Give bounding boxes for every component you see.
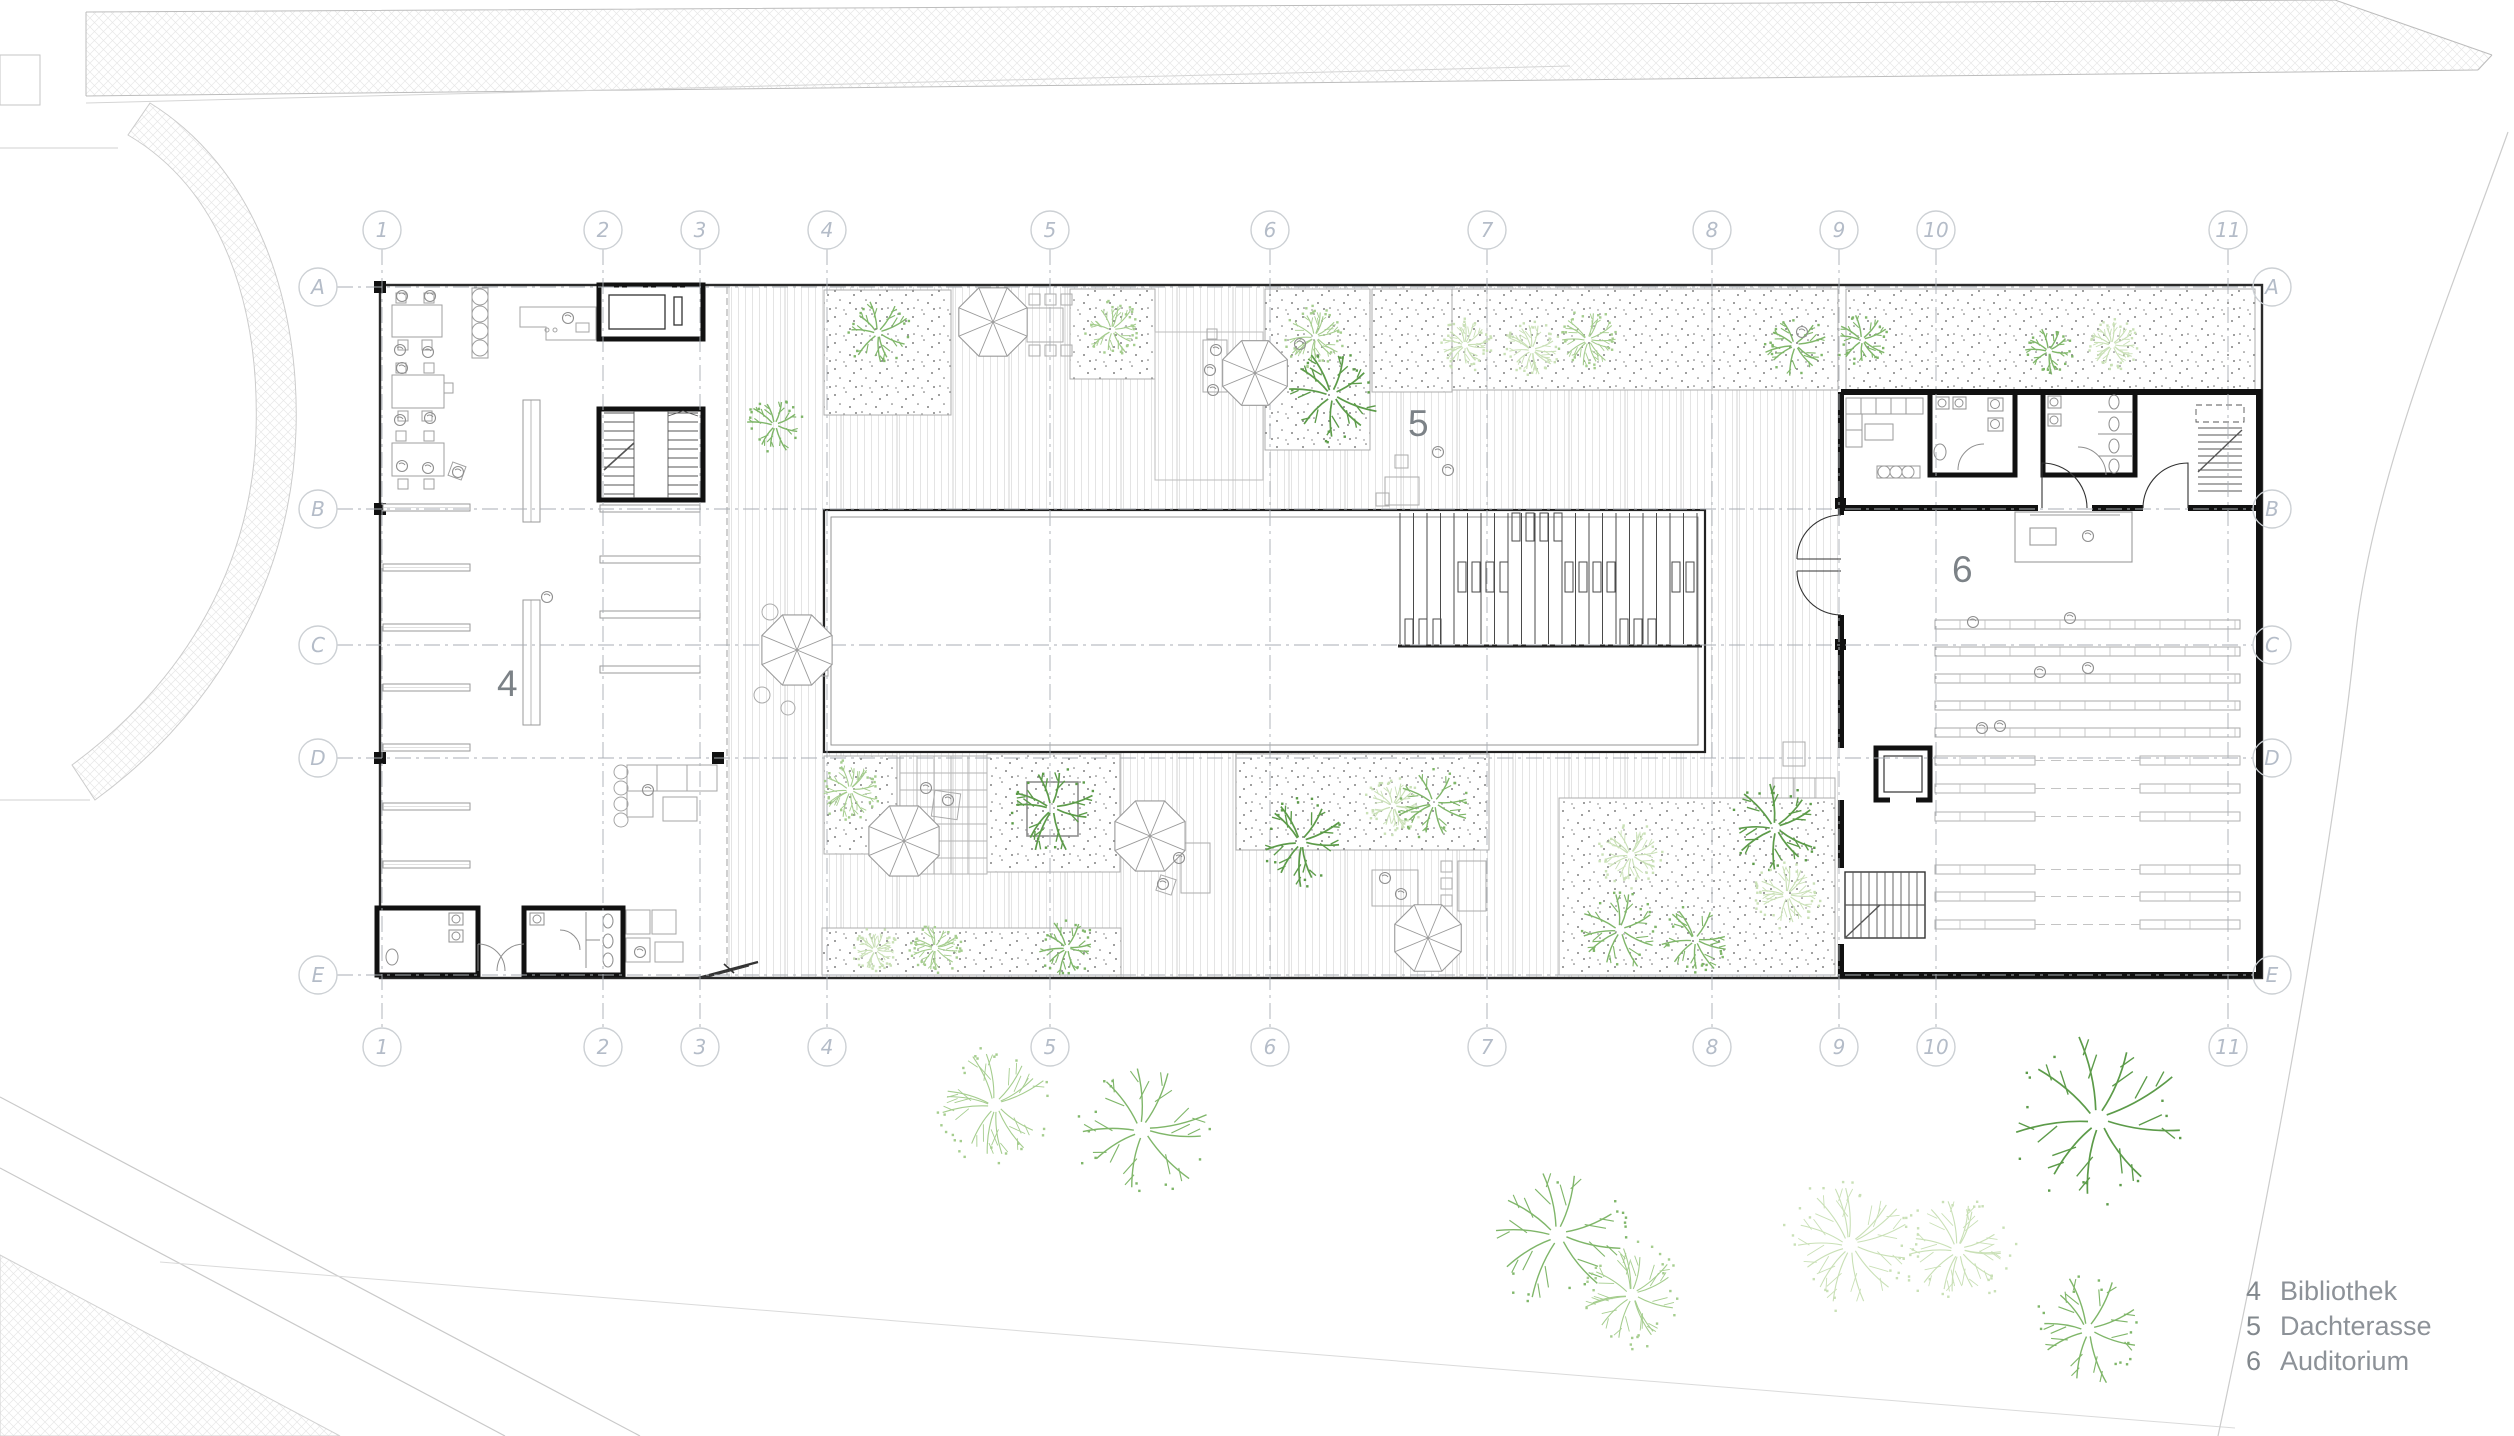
svg-text:6: 6 [1264, 218, 1277, 242]
skylight-void [824, 510, 1705, 752]
svg-text:A: A [309, 275, 325, 299]
tree-leafy-vlight [1901, 1201, 2018, 1298]
person-marker [395, 415, 406, 426]
person-marker [1995, 721, 2006, 732]
parasol [1223, 341, 1288, 406]
library-wc [377, 908, 623, 975]
person-marker [2065, 613, 2076, 624]
tree-leafy-light [937, 1047, 1049, 1164]
person-marker [423, 347, 434, 358]
person-marker [643, 785, 654, 796]
auditorium-seat-rows [1935, 620, 2240, 929]
svg-text:B: B [311, 497, 325, 521]
svg-text:B: B [2265, 497, 2279, 521]
legend-number: 6 [2246, 1344, 2272, 1379]
svg-text:C: C [311, 633, 325, 657]
svg-text:C: C [2265, 633, 2279, 657]
parasol [762, 615, 832, 685]
legend-item-auditorium: 6Auditorium [2246, 1344, 2432, 1379]
svg-text:1: 1 [376, 1035, 389, 1059]
person-marker [542, 592, 553, 603]
person-marker [563, 313, 574, 324]
person-marker [423, 463, 434, 474]
auditorium-stair [1845, 872, 1925, 938]
person-marker [425, 413, 436, 424]
svg-text:E: E [312, 963, 325, 987]
person-marker [397, 461, 408, 472]
parasol [869, 806, 939, 876]
svg-text:10: 10 [1923, 1035, 1948, 1059]
floor-plan-canvas: 11223344556677889910101111AABBCCDDEE 456 [0, 0, 2514, 1436]
area-label-5: 5 [1408, 403, 1429, 444]
person-marker [1968, 617, 1979, 628]
floorplan-page: { "legend": { "items": [ {"num": "4", "l… [0, 0, 2514, 1436]
svg-text:7: 7 [1481, 1035, 1494, 1059]
svg-text:D: D [2264, 746, 2279, 770]
legend: 4Bibliothek 5Dachterasse 6Auditorium [2246, 1274, 2432, 1379]
svg-text:D: D [310, 746, 325, 770]
legend-number: 5 [2246, 1309, 2272, 1344]
parasol [959, 288, 1027, 356]
legend-label: Bibliothek [2280, 1276, 2397, 1306]
svg-text:9: 9 [1833, 1035, 1846, 1059]
legend-number: 4 [2246, 1274, 2272, 1309]
area-label-4: 4 [497, 663, 518, 704]
person-marker [2083, 663, 2094, 674]
person-marker [453, 467, 464, 478]
svg-text:8: 8 [1706, 1035, 1719, 1059]
svg-text:7: 7 [1481, 218, 1494, 242]
svg-text:11: 11 [2215, 218, 2240, 242]
parasol [1395, 905, 1462, 972]
svg-text:2: 2 [597, 218, 610, 242]
svg-text:3: 3 [694, 218, 707, 242]
svg-text:8: 8 [1706, 218, 1719, 242]
svg-text:4: 4 [821, 1035, 834, 1059]
svg-text:4: 4 [821, 218, 834, 242]
tree-branch-med [2038, 1275, 2138, 1382]
svg-text:10: 10 [1923, 218, 1948, 242]
svg-text:1: 1 [376, 218, 389, 242]
person-marker [635, 947, 646, 958]
tree-leafy-vlight [1783, 1181, 1917, 1312]
svg-text:3: 3 [694, 1035, 707, 1059]
svg-text:6: 6 [1264, 1035, 1277, 1059]
svg-text:5: 5 [1044, 218, 1057, 242]
svg-text:E: E [2266, 963, 2279, 987]
svg-text:5: 5 [1044, 1035, 1057, 1059]
person-marker [2083, 531, 2094, 542]
legend-item-bibliothek: 4Bibliothek [2246, 1274, 2432, 1309]
area-label-6: 6 [1952, 549, 1973, 590]
library-stair [599, 409, 703, 500]
tree-branch-dark [2016, 1037, 2181, 1206]
svg-text:11: 11 [2215, 1035, 2240, 1059]
legend-item-dachterasse: 5Dachterasse [2246, 1309, 2432, 1344]
svg-text:9: 9 [1833, 218, 1846, 242]
auditorium-block [1797, 392, 2259, 975]
svg-text:2: 2 [597, 1035, 610, 1059]
tree-branch-med [1078, 1069, 1211, 1193]
svg-text:A: A [2263, 275, 2279, 299]
person-marker [2035, 667, 2046, 678]
legend-label: Auditorium [2280, 1346, 2409, 1376]
legend-label: Dachterasse [2280, 1311, 2432, 1341]
tree-leafy-light [1585, 1241, 1678, 1351]
